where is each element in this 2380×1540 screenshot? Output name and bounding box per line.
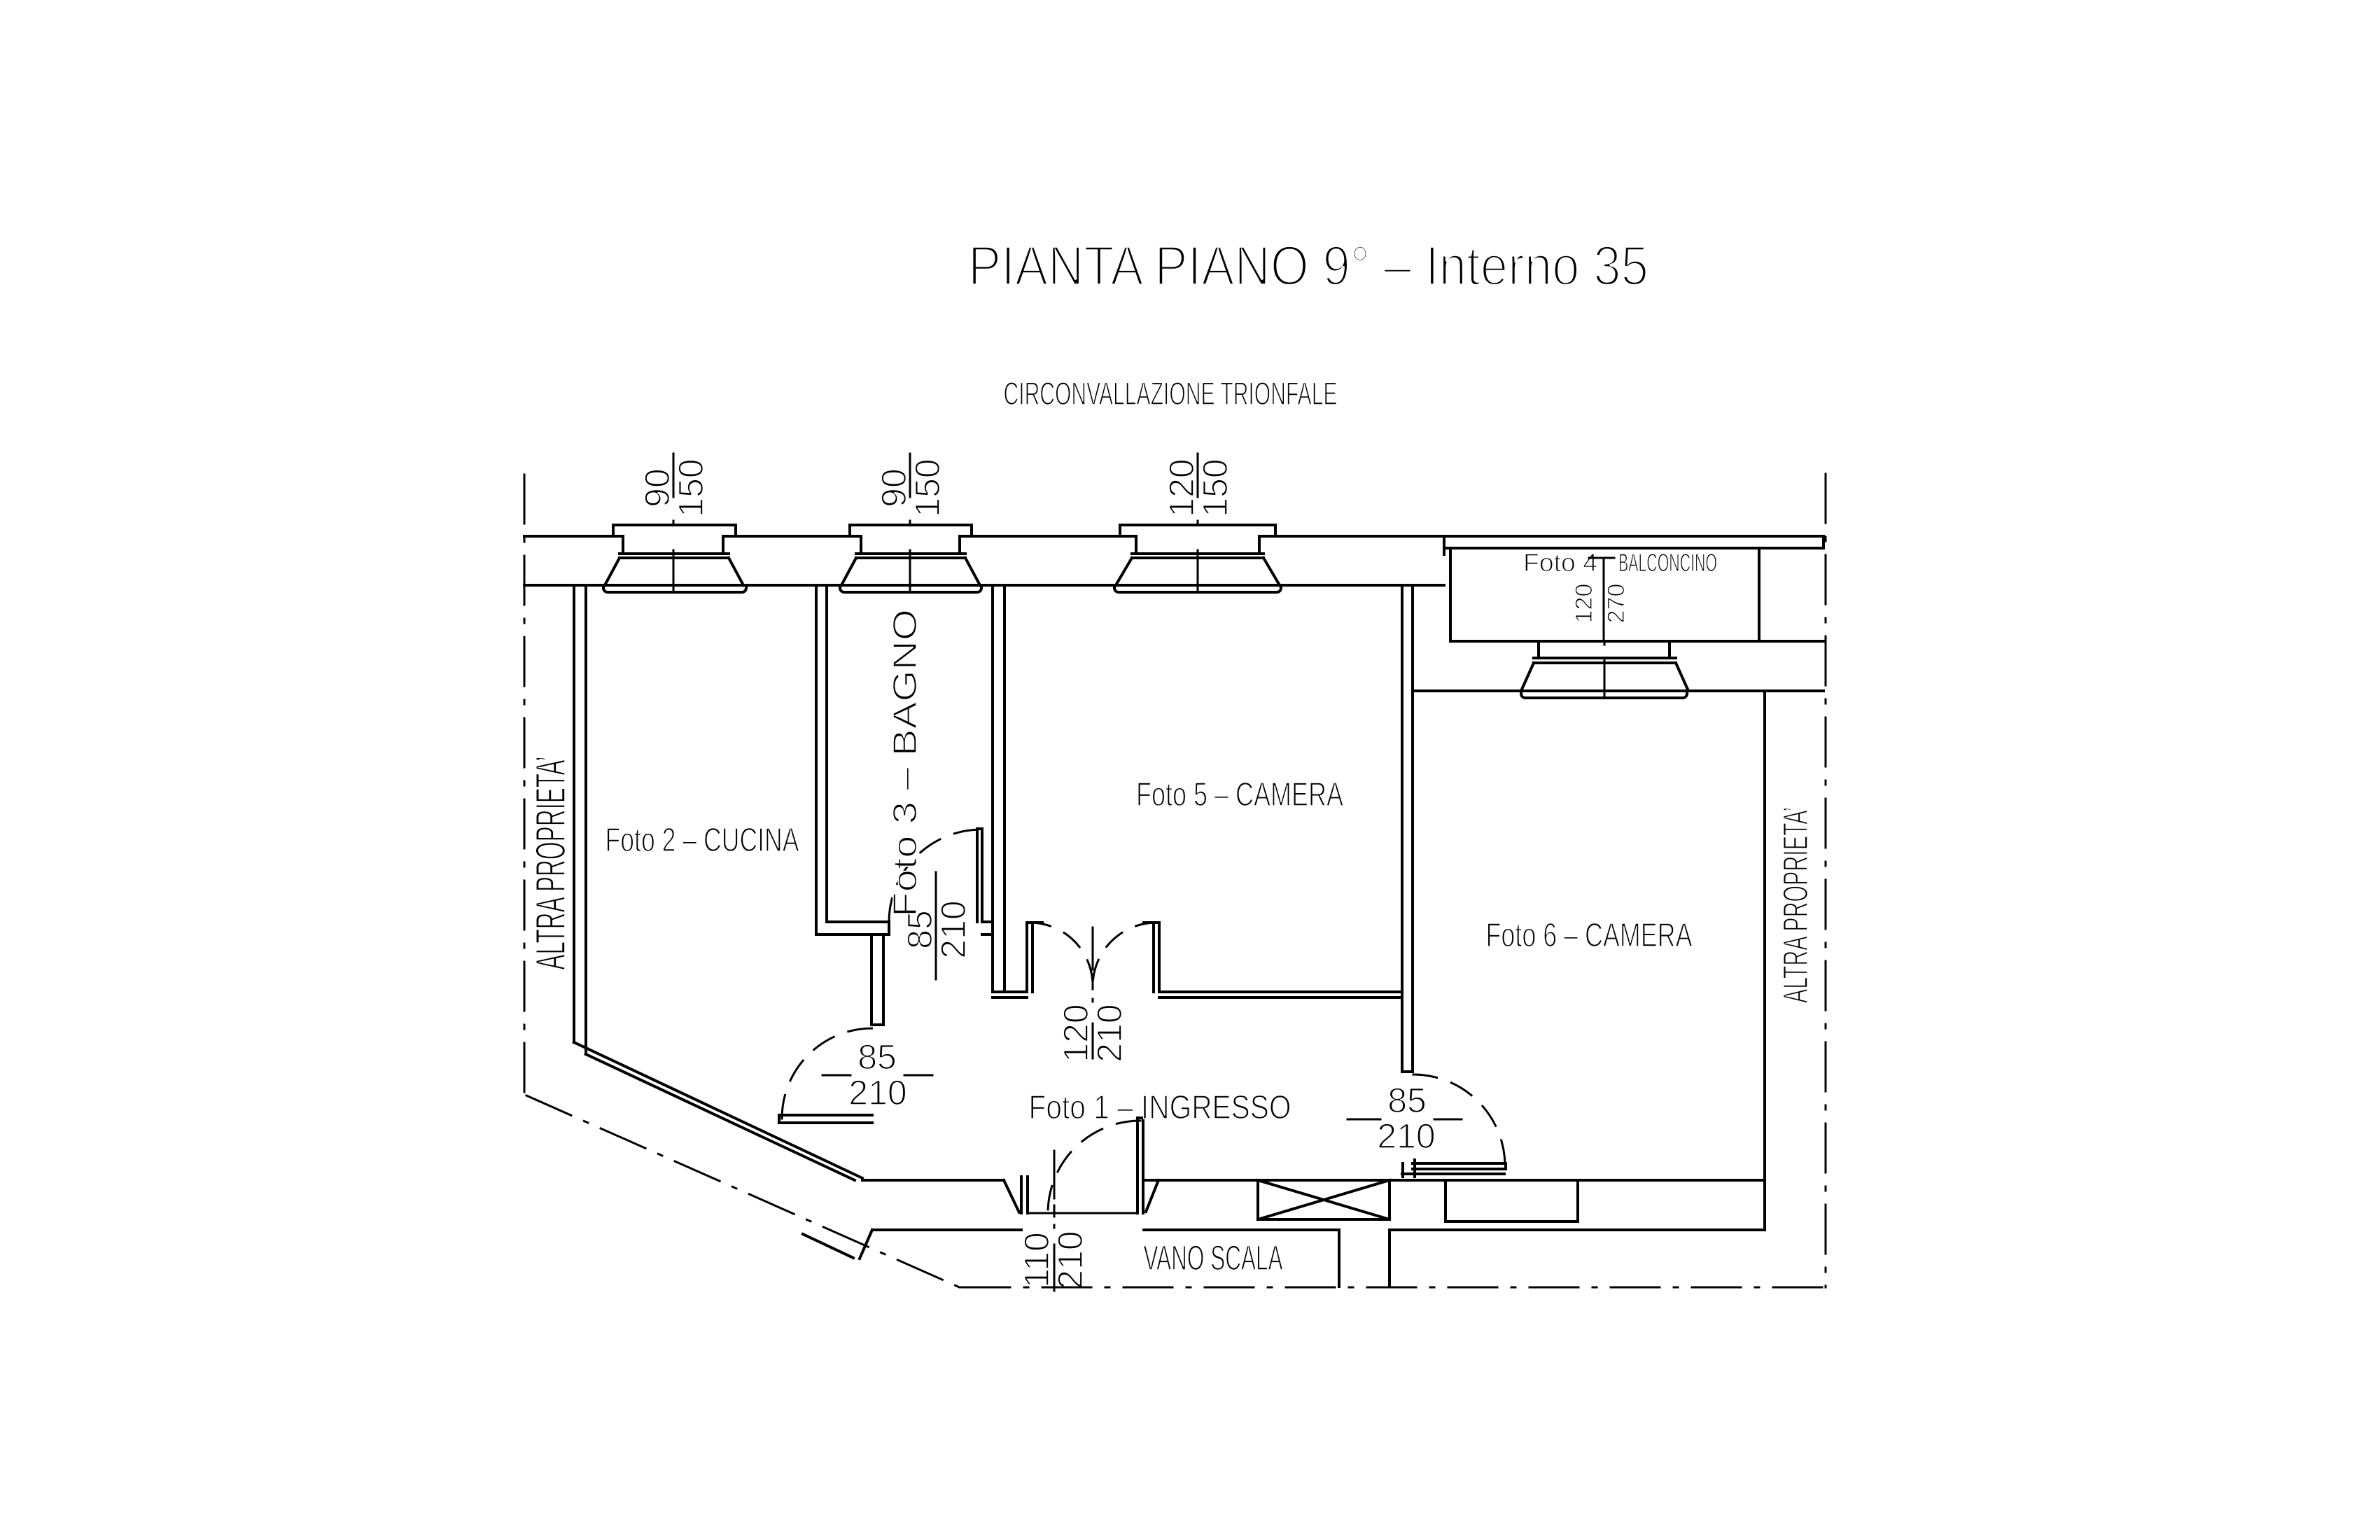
svg-text:ALTRA PROPRIETA’: ALTRA PROPRIETA’ — [1776, 807, 1815, 1003]
svg-text:VANO SCALA: VANO SCALA — [1144, 1238, 1283, 1277]
svg-text:120: 120 — [1571, 584, 1597, 624]
svg-text:210: 210 — [1377, 1116, 1435, 1156]
svg-text:Foto 6 – CAMERA: Foto 6 – CAMERA — [1486, 917, 1693, 954]
svg-text:210: 210 — [1090, 1004, 1129, 1062]
svg-text:ALTRA PROPRIETA’: ALTRA PROPRIETA’ — [527, 757, 574, 970]
svg-text:270: 270 — [1603, 584, 1630, 624]
svg-text:85: 85 — [1387, 1081, 1427, 1120]
svg-text:150: 150 — [1196, 458, 1235, 517]
svg-text:Foto 5 – CAMERA: Foto 5 – CAMERA — [1136, 776, 1343, 813]
svg-text:Foto 2 – CUCINA: Foto 2 – CUCINA — [605, 822, 799, 859]
svg-text:BALCONCINO: BALCONCINO — [1618, 548, 1717, 577]
svg-text:CIRCONVALLAZIONE TRIONFALE: CIRCONVALLAZIONE TRIONFALE — [1004, 375, 1338, 412]
svg-text:PIANTA PIANO 9° – Interno 35: PIANTA PIANO 9° – Interno 35 — [968, 234, 1648, 297]
svg-text:Foto 1 – INGRESSO: Foto 1 – INGRESSO — [1029, 1089, 1291, 1126]
svg-text:150: 150 — [671, 458, 710, 517]
svg-text:210: 210 — [934, 900, 973, 958]
svg-text:210: 210 — [848, 1073, 906, 1112]
svg-text:Foto 4: Foto 4 — [1523, 548, 1597, 577]
svg-text:150: 150 — [908, 458, 947, 517]
svg-text:210: 210 — [1051, 1231, 1090, 1289]
svg-text:85: 85 — [857, 1037, 897, 1077]
svg-text:Foto 3 – BAGNO: Foto 3 – BAGNO — [887, 609, 924, 917]
